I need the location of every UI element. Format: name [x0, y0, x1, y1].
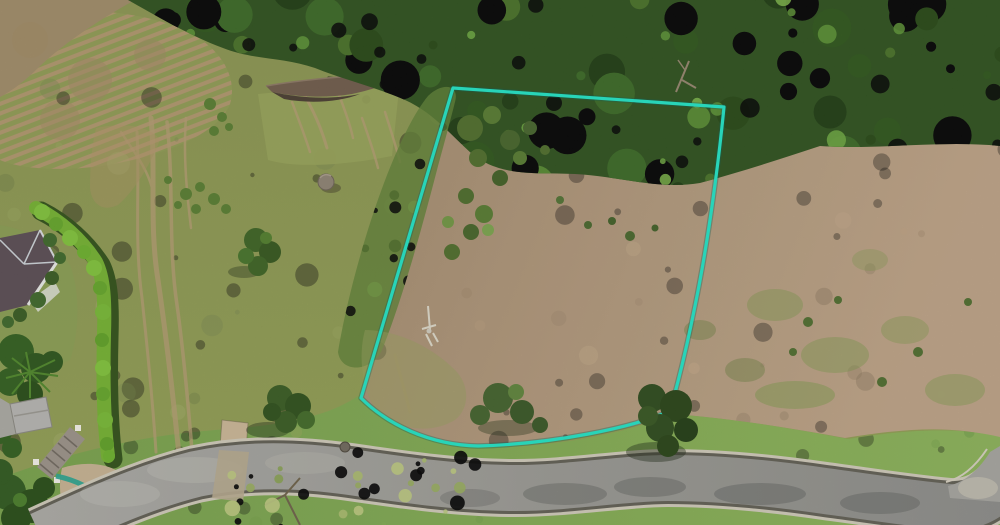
photo-grain [0, 0, 1000, 525]
aerial-photo-canvas [0, 0, 1000, 525]
aerial-photo [0, 0, 1000, 525]
